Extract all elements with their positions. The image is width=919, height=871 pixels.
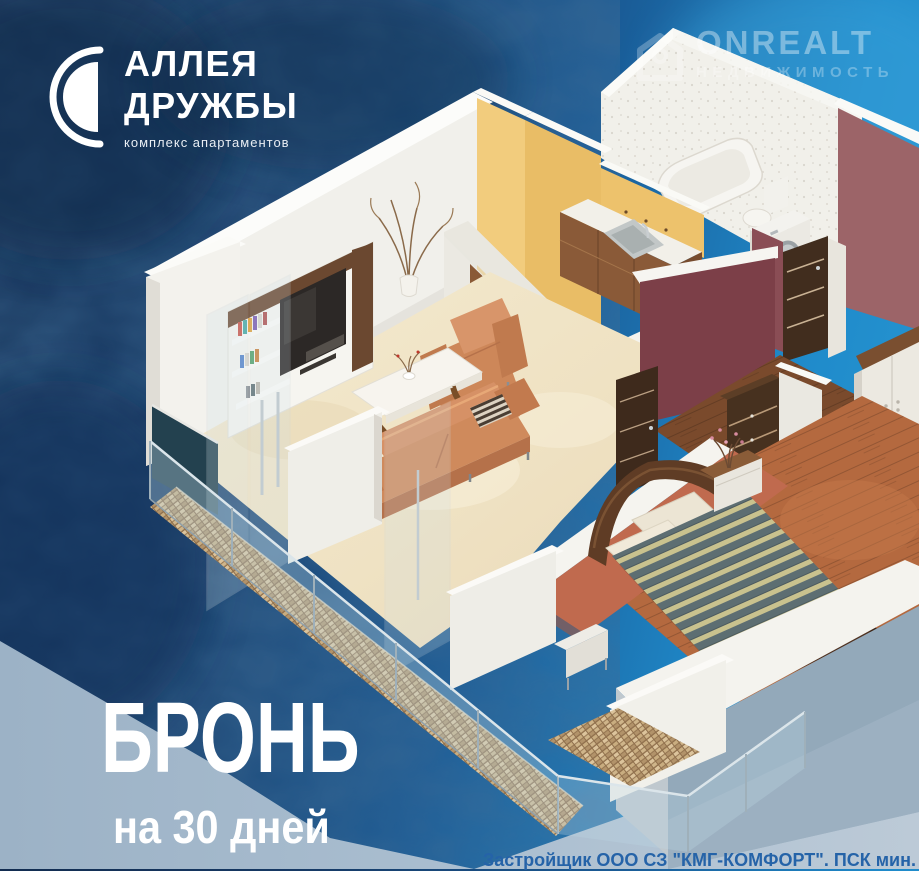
- brand-tagline: комплекс апартаментов: [124, 135, 298, 150]
- crescent-logo-icon: [48, 44, 106, 150]
- watermark: ONREALT НЕДВИЖИМОСТЬ: [632, 26, 912, 82]
- developer-disclaimer: Застройщик ООО СЗ "КМГ-КОМФОРТ". ПСК мин…: [483, 850, 916, 871]
- promo-block: БРОНЬ на 30 дней: [101, 690, 460, 854]
- brand-name-line1: АЛЛЕЯ: [124, 44, 298, 84]
- entry-door: [783, 236, 828, 362]
- house-icon: [632, 30, 688, 82]
- promo-headline: БРОНЬ: [101, 690, 360, 786]
- watermark-title: ONREALT: [696, 26, 894, 60]
- brand-logo: АЛЛЕЯ ДРУЖБЫ комплекс апартаментов: [48, 44, 298, 150]
- watermark-subtitle: НЕДВИЖИМОСТЬ: [696, 64, 894, 81]
- brand-name-line2: ДРУЖБЫ: [124, 86, 298, 126]
- promo-subline: на 30 дней: [113, 800, 425, 854]
